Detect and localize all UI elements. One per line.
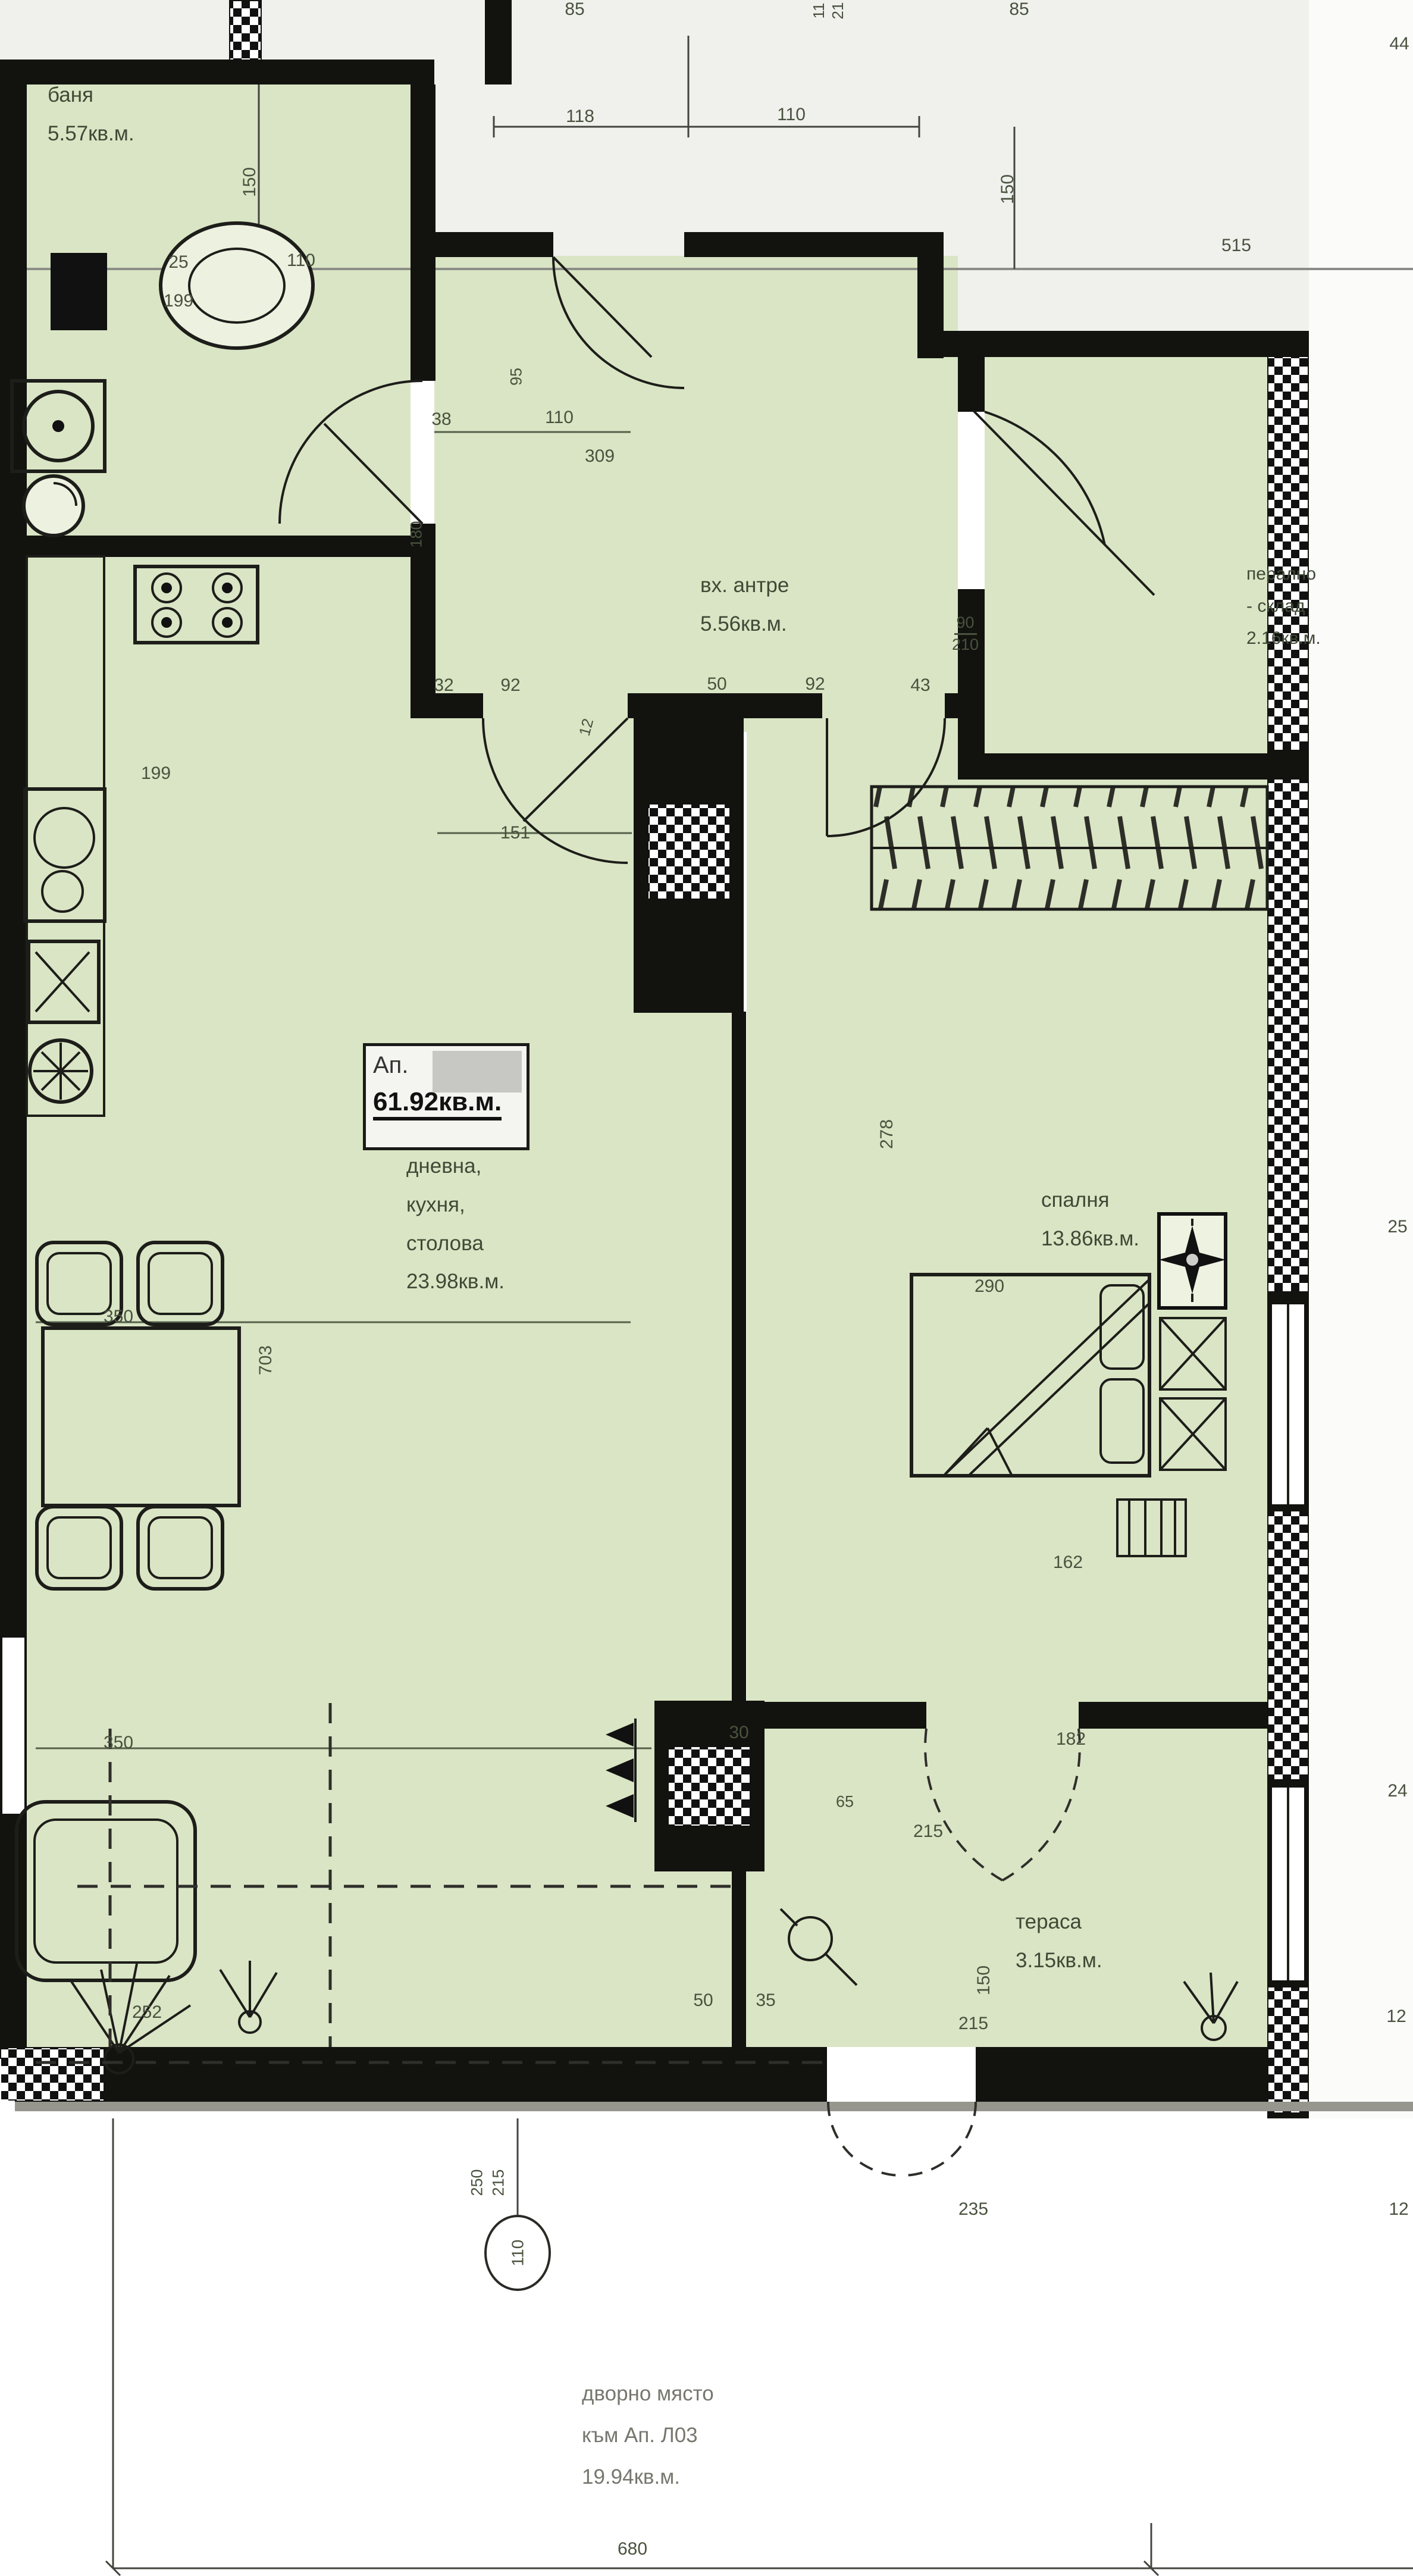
- dimension-label: 199: [141, 765, 171, 782]
- dimension-label: 150: [975, 1965, 993, 1995]
- dimension-label: 250: [469, 2169, 485, 2196]
- dimension-label: 703: [257, 1345, 275, 1375]
- dimension-label: 150: [999, 174, 1017, 204]
- room-name: перално: [1246, 558, 1321, 590]
- dimension-label: 278: [878, 1119, 896, 1149]
- dimension-label: 44: [1389, 35, 1409, 53]
- dimension-label: 350: [104, 1308, 133, 1326]
- dimension-label: 199: [164, 292, 193, 310]
- dimension-labels-layer: 8511218544118110150150251105151993895110…: [0, 0, 1413, 2576]
- floor-plan-canvas: баня 5.57кв.м. вх. антре 5.56кв.м. перал…: [0, 0, 1413, 2576]
- dimension-label: 12: [1386, 2008, 1406, 2026]
- dimension-label: 92: [500, 677, 520, 694]
- dimension-label: 11: [811, 3, 826, 19]
- dimension-label: 680: [618, 2540, 647, 2558]
- dimension-label: 215: [913, 1823, 943, 1841]
- dimension-label: 151: [500, 824, 530, 842]
- dimension-label: 110: [545, 409, 574, 427]
- unit-number-blur-patch: [433, 1051, 522, 1093]
- dimension-label: 12: [1389, 2201, 1408, 2218]
- dimension-label: 50: [693, 1992, 713, 2010]
- dimension-label: 12: [577, 717, 596, 738]
- dimension-label: 43: [910, 677, 930, 694]
- dimension-label: 162: [1053, 1554, 1083, 1572]
- dimension-label: 92: [805, 675, 825, 693]
- dimension-label: 180: [409, 521, 425, 547]
- dimension-label: 50: [707, 675, 726, 693]
- dimension-label: 65: [836, 1794, 854, 1810]
- unit-prefix: Ап.: [373, 1052, 408, 1078]
- dimension-label: 252: [132, 2004, 162, 2021]
- room-label-laundry: перално - склад 2.16кв.м.: [1246, 558, 1321, 655]
- dimension-label: 35: [756, 1992, 775, 2010]
- dimension-label: 25: [168, 253, 188, 271]
- dimension-label: 290: [975, 1278, 1004, 1295]
- room-area: 2.16кв.м.: [1246, 622, 1321, 655]
- dimension-label: 110: [287, 252, 315, 270]
- dimension-label: 95: [509, 368, 525, 386]
- dimension-label: 110: [777, 106, 806, 124]
- dimension-label: 215: [958, 2015, 988, 2033]
- dimension-label: 21: [830, 2, 845, 20]
- dimension-label: 182: [1056, 1730, 1086, 1748]
- dimension-label: 38: [431, 411, 451, 428]
- dimension-label: 515: [1221, 237, 1251, 255]
- dimension-label: 24: [1387, 1782, 1407, 1800]
- dimension-label: 215: [491, 2169, 507, 2196]
- dimension-label: 85: [1009, 1, 1029, 18]
- dimension-label: 32: [434, 677, 453, 694]
- dimension-label: 309: [585, 447, 615, 465]
- dimension-label: 350: [104, 1734, 133, 1752]
- dimension-label: 235: [958, 2201, 988, 2218]
- dimension-label: 85: [565, 1, 584, 18]
- dimension-label: 30: [729, 1724, 748, 1742]
- dimension-label: 25: [1387, 1218, 1407, 1236]
- room-name: - склад: [1246, 590, 1321, 622]
- dimension-label: 150: [241, 167, 259, 197]
- dimension-label: 118: [566, 108, 594, 126]
- unit-label-box: Ап. 61.92кв.м.: [363, 1043, 530, 1150]
